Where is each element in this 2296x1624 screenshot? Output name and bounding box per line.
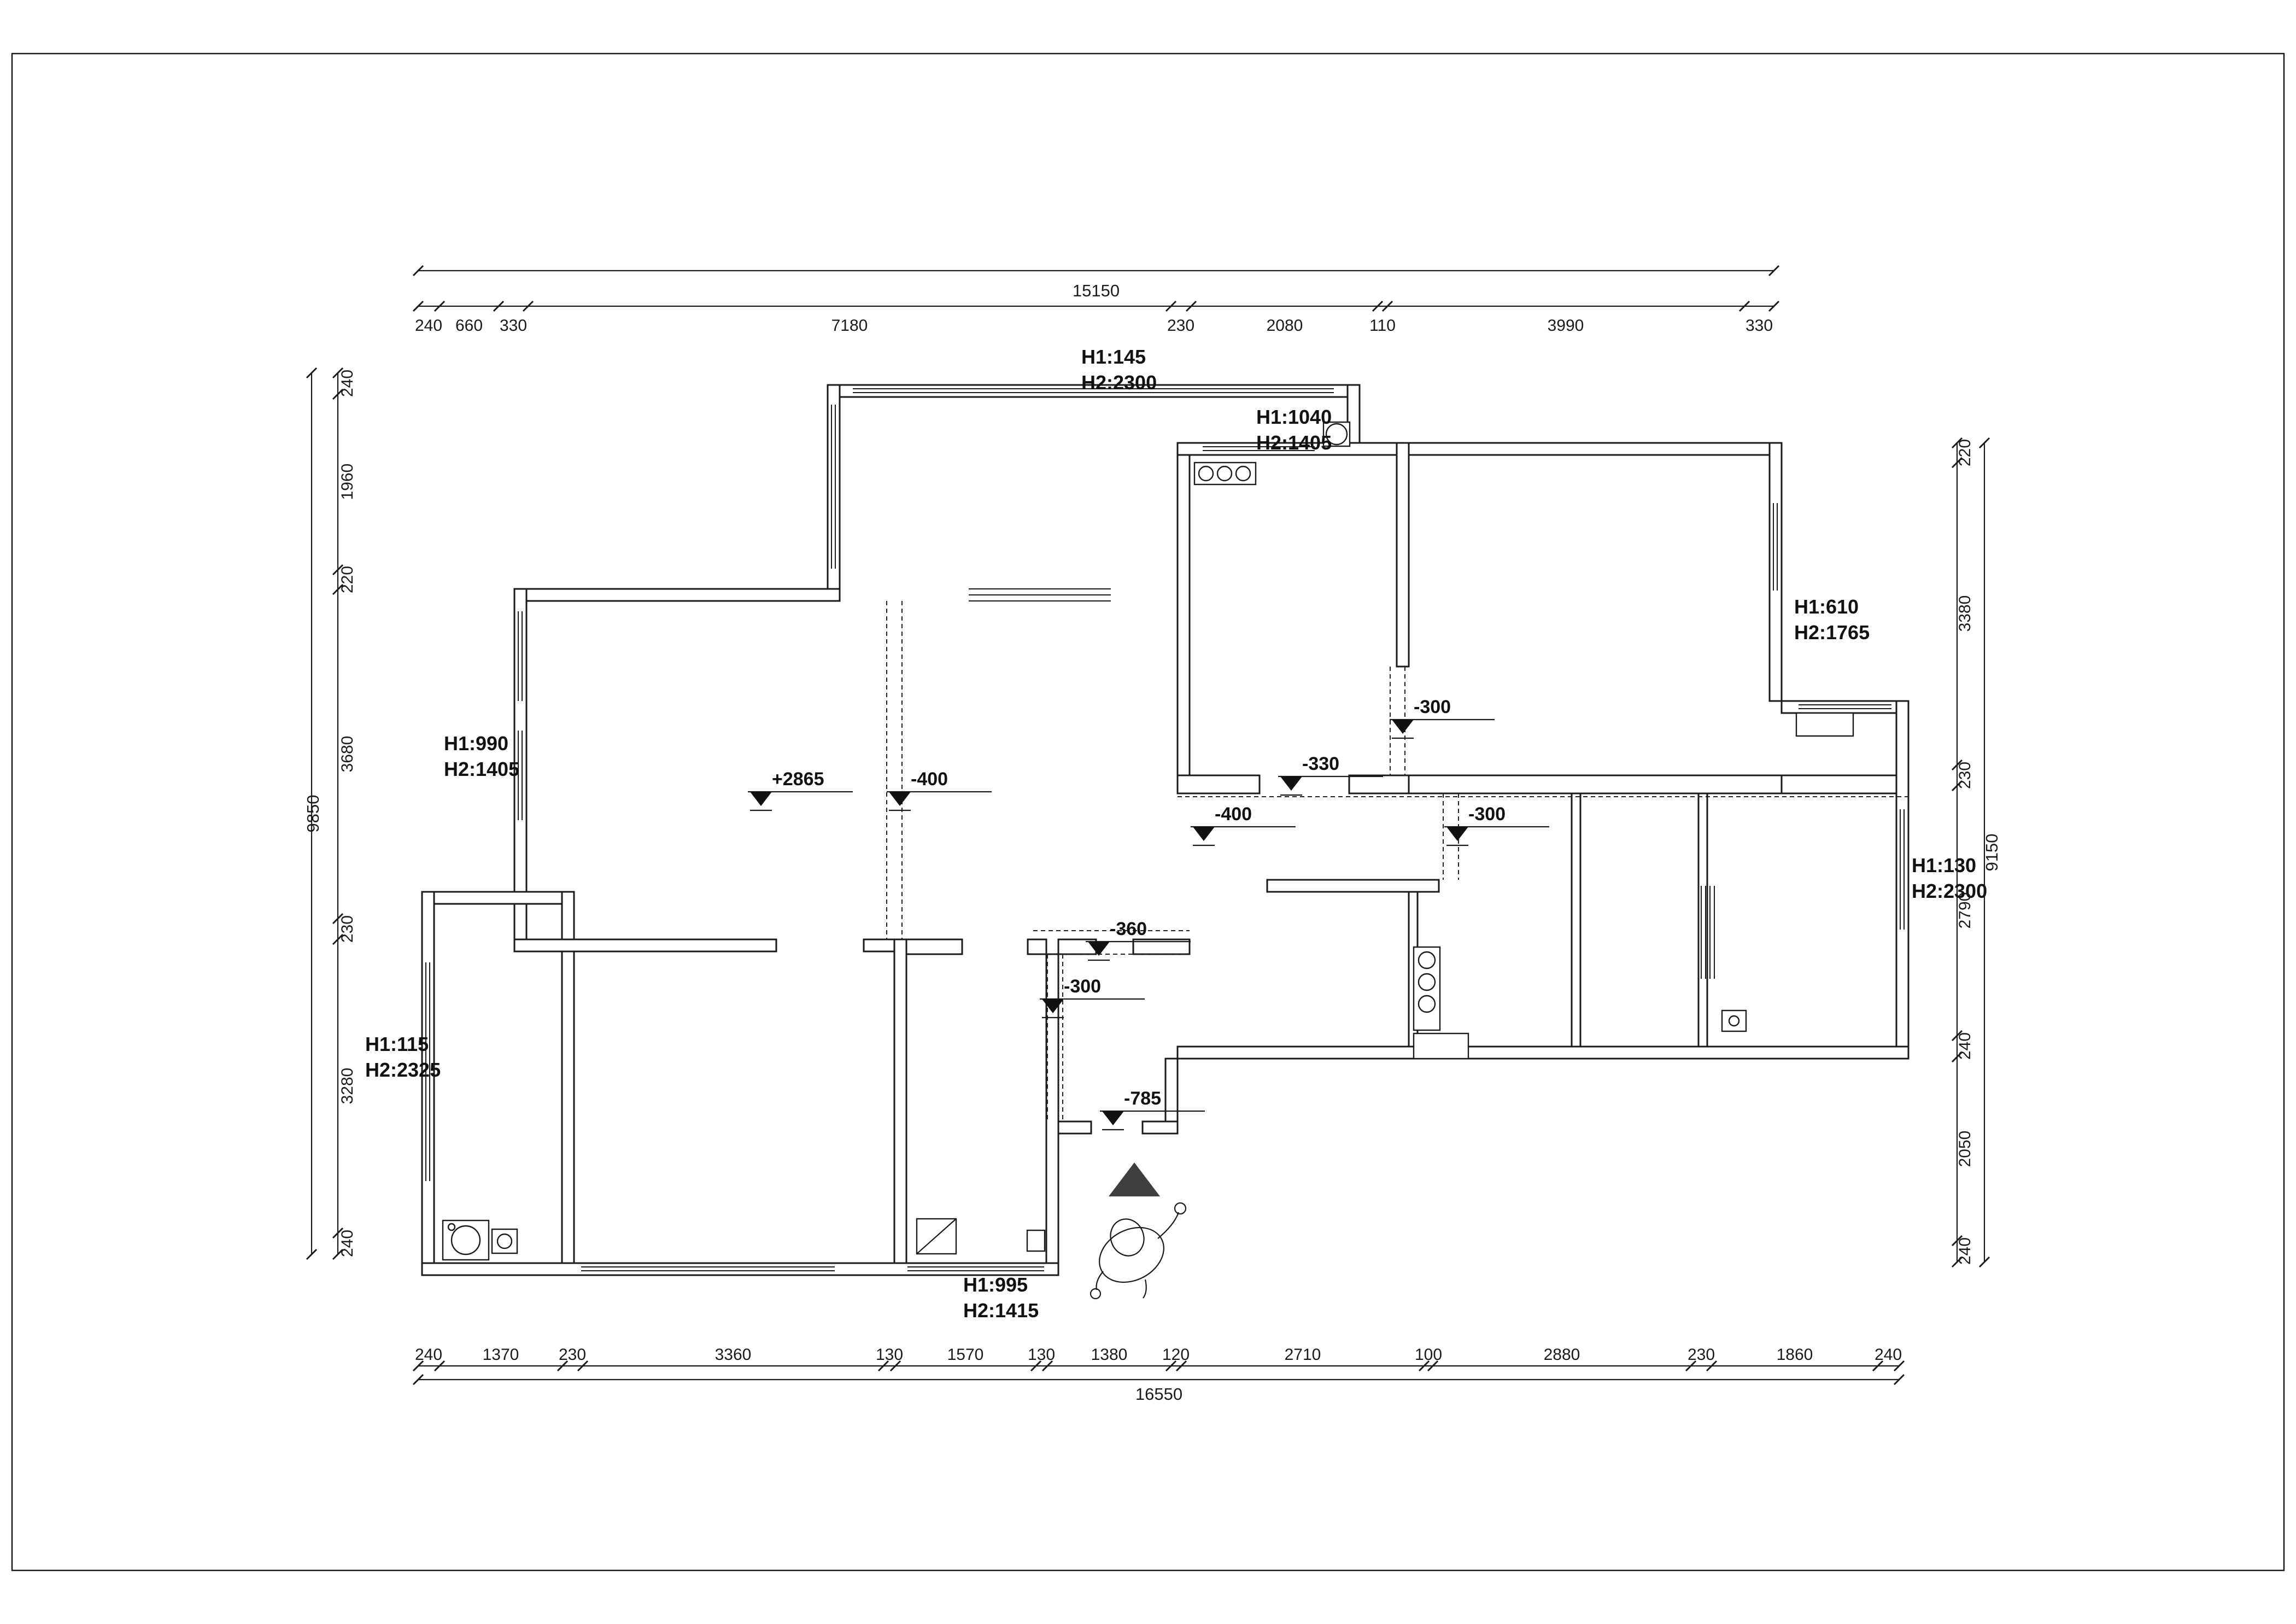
dimension-chain-bottom: 240 1370 230 3360 130 1570 130 1380 120 … [413,1346,1904,1404]
dim-segment: 230 [338,915,356,943]
wall-segment [906,939,962,954]
annotation-line: H2:2300 [1081,371,1157,394]
level-value: -400 [1215,804,1252,825]
window-annotation: H1:990 H2:1405 [444,732,519,780]
bathroom-fixture-icon [1414,947,1468,1059]
level-value: -300 [1468,804,1506,825]
dim-segment: 120 [1162,1346,1190,1364]
washer-icon [443,1220,517,1260]
dim-segment: 3380 [1956,595,1974,632]
dim-total: 15150 [1073,281,1120,300]
dim-segment: 100 [1415,1346,1442,1364]
wall-segment [514,589,840,601]
window-annotations-layer: H1:145 H2:2300 H1:1040 H2:1405 H1:610 H2… [365,346,1987,1322]
dim-segment: 220 [338,566,356,593]
dim-segment: 2710 [1285,1346,1321,1364]
annotation-line: H2:1415 [963,1299,1039,1322]
railing-window-symbol [969,589,1111,601]
wall-segment [1143,1121,1178,1134]
balcony-shelf-icon [1796,713,1853,736]
wall-segment [1397,443,1409,667]
annotation-line: H2:2325 [365,1059,441,1081]
wall-segment [1178,455,1190,775]
dim-total: 9150 [1982,834,2001,872]
window-annotation: H1:145 H2:2300 [1081,346,1157,394]
dim-segment: 220 [1956,439,1974,466]
floor-drain-icon [1722,1010,1746,1031]
annotation-line: H1:1040 [1256,406,1332,428]
level-marker: +2865 [748,769,853,810]
floor-plan-sheet: +2865 -400 -300 -330 -400 [0,0,2296,1624]
annotation-line: H2:1405 [1256,431,1332,454]
annotation-line: H1:990 [444,732,508,755]
annotation-line: H2:1765 [1794,621,1870,644]
annotation-line: H1:995 [963,1274,1028,1296]
dimension-chain-left: 9850 240 1960 220 3680 230 3280 240 [303,368,356,1259]
dim-segment: 240 [338,370,356,397]
wall-segment [1896,701,1908,1059]
dim-segment: 240 [415,317,442,335]
wall-segment [1058,1121,1091,1134]
dim-segment: 2080 [1267,317,1303,335]
annotation-line: H2:1405 [444,758,519,780]
dim-segment: 230 [559,1346,586,1364]
annotation-line: H1:115 [365,1033,429,1055]
annotation-line: H1:145 [1081,346,1146,368]
window-annotation: H1:995 H2:1415 [963,1274,1039,1322]
entrance-arrow-icon [1109,1162,1160,1196]
windows-layer [426,389,1904,1271]
annotation-line: H1:130 [1912,854,1976,877]
wall-segment [422,892,574,904]
dim-segment: 660 [455,317,483,335]
dim-segment: 2790 [1956,892,1974,929]
dim-segment: 1960 [338,464,356,500]
stove-icon [1194,463,1256,484]
level-value: -300 [1414,697,1451,717]
reference-lines-layer [887,601,1908,1121]
dim-segment: 1380 [1091,1346,1128,1364]
person-figure-icon [1090,1203,1186,1299]
dimension-chain-top: 15150 240 660 330 7180 230 2080 110 3990… [413,266,1779,335]
dim-segment: 2880 [1544,1346,1580,1364]
wall-segment [1782,701,1908,713]
wall-segment [1267,880,1439,892]
dim-segment: 240 [338,1230,356,1257]
shower-tray-icon [917,1219,1045,1254]
dim-total: 16550 [1135,1385,1182,1404]
wall-segment [1409,775,1782,793]
dim-segment: 3360 [715,1346,752,1364]
dimension-chain-right: 220 3380 230 2790 240 2050 240 9150 [1952,438,2001,1267]
wall-segment [1782,775,1896,793]
level-marker: -400 [1191,804,1296,845]
dim-segment: 330 [1746,317,1773,335]
wall-segment [1178,1047,1908,1059]
wall-segment [1349,775,1409,793]
wall-segment [514,939,776,951]
level-value: -330 [1302,753,1339,774]
dim-segment: 330 [500,317,527,335]
sheet-border [12,54,2284,1570]
dim-segment: 230 [1167,317,1194,335]
level-value: -785 [1124,1088,1161,1109]
walls-layer [422,385,1908,1275]
dim-segment: 3280 [338,1068,356,1105]
level-value: +2865 [772,769,824,790]
dim-segment: 240 [415,1346,442,1364]
dim-segment: 230 [1688,1346,1715,1364]
wall-segment [1572,793,1580,1059]
dim-segment: 240 [1956,1237,1974,1265]
dim-segment: 1860 [1777,1346,1813,1364]
dim-segment: 2050 [1956,1131,1974,1167]
dim-segment: 240 [1956,1032,1974,1060]
wall-segment [1178,775,1260,793]
dim-segment: 130 [1028,1346,1055,1364]
dim-segment: 3990 [1548,317,1584,335]
dim-segment: 240 [1875,1346,1902,1364]
wall-segment [1770,443,1782,701]
wall-segment [894,939,906,1275]
wall-segment [422,892,434,1275]
dim-segment: 1370 [483,1346,519,1364]
level-value: -300 [1064,976,1101,997]
dim-segment: 1570 [947,1346,984,1364]
dim-segment: 130 [876,1346,903,1364]
dim-segment: 7180 [831,317,868,335]
annotation-line: H1:610 [1794,595,1859,618]
annotation-line: H2:2300 [1912,880,1987,902]
window-annotation: H1:1040 H2:1405 [1256,406,1332,454]
wall-segment [828,385,840,589]
level-markers-layer: +2865 -400 -300 -330 -400 [748,697,1549,1130]
level-value: -360 [1110,919,1147,939]
dim-segment: 110 [1369,317,1396,335]
entrance-group [1090,1162,1186,1299]
level-marker: -300 [1444,804,1549,845]
dim-segment: 230 [1956,762,1974,789]
floor-plan-drawing: +2865 -400 -300 -330 -400 [0,0,2296,1624]
level-value: -400 [911,769,948,790]
dim-total: 9850 [303,795,323,833]
wall-segment [1028,939,1046,954]
wall-segment [864,939,894,951]
window-annotation: H1:130 H2:2300 [1912,854,1987,902]
window-annotation: H1:610 H2:1765 [1794,595,1870,644]
dim-segment: 3680 [338,736,356,773]
